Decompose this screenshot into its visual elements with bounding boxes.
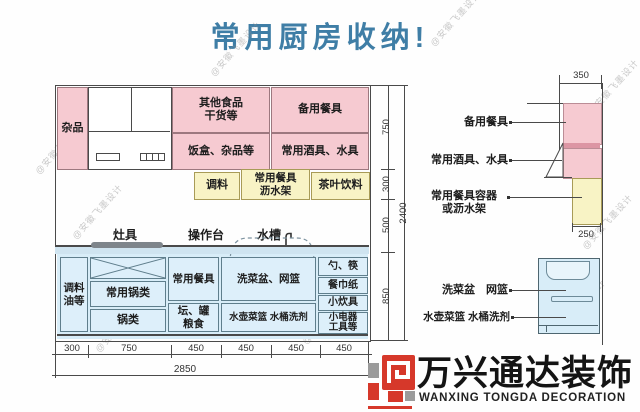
dim-tick bbox=[320, 345, 321, 358]
side-label-container-rack: 常用餐具容器 或沥水架 bbox=[420, 190, 508, 215]
cell-spoons-chopsticks: 勺、筷 bbox=[318, 257, 368, 276]
side-label-basin-basket: 洗菜盆 网篮 bbox=[420, 284, 508, 297]
side-label-wine-water: 常用酒具、水具 bbox=[418, 154, 508, 167]
dim-850: 850 bbox=[382, 281, 394, 311]
hood-top-line bbox=[88, 131, 170, 132]
dim-line-250 bbox=[572, 226, 601, 227]
dim-ext-line bbox=[370, 340, 408, 341]
dim-line-350 bbox=[559, 83, 602, 84]
dim-ext-line bbox=[55, 342, 56, 378]
cell-seasoning: 调料 bbox=[194, 172, 240, 200]
dim-tick bbox=[221, 345, 222, 358]
side-line bbox=[544, 177, 572, 178]
dim-2850: 2850 bbox=[160, 365, 210, 375]
dim-tick bbox=[88, 345, 89, 358]
drawer-x-front bbox=[90, 257, 166, 279]
cell-tea-drinks: 茶叶饮料 bbox=[311, 172, 370, 200]
side-upper-cabinet bbox=[563, 103, 602, 145]
side-label-kettle-bucket: 水壶菜篮 水桶洗剂 bbox=[412, 311, 510, 323]
stove-top bbox=[91, 242, 163, 248]
cell-spare-tableware: 备用餐具 bbox=[271, 87, 369, 133]
x-pattern-icon bbox=[91, 258, 165, 278]
dim-2400: 2400 bbox=[399, 197, 411, 229]
cell-basin-basket: 洗菜盆、网篮 bbox=[221, 257, 316, 301]
side-wall-line bbox=[602, 83, 603, 345]
cell-pots: 锅类 bbox=[90, 309, 166, 332]
cell-jars-grain: 坛、罐 粮食 bbox=[168, 303, 219, 332]
cell-small-cookware: 小炊具 bbox=[318, 295, 368, 311]
leader-line bbox=[510, 197, 582, 198]
kick-plate-line bbox=[57, 334, 368, 336]
kitchen-storage-poster: 常用厨房收纳! @安徽飞墨设计 @安徽飞墨设计 @安徽飞墨设计 @安徽飞墨设计 … bbox=[0, 0, 640, 412]
label-stove: 灶具 bbox=[101, 228, 149, 243]
leader-line bbox=[514, 317, 566, 318]
dim-b-750: 750 bbox=[114, 344, 144, 354]
side-lower-shelf bbox=[563, 148, 602, 179]
cell-lunch-boxes: 饭盒、杂品等 bbox=[172, 133, 270, 170]
dim-b-450a: 450 bbox=[181, 344, 211, 354]
dim-ext-line bbox=[370, 85, 408, 86]
cell-misc: 杂品 bbox=[57, 87, 88, 170]
side-drain-rack bbox=[572, 178, 602, 225]
dim-line-bottom-total bbox=[52, 375, 372, 376]
cell-common-tableware: 常用餐具 bbox=[168, 257, 219, 301]
cell-napkins: 餐巾纸 bbox=[318, 277, 368, 294]
cell-other-food: 其他食品 干货等 bbox=[172, 87, 270, 133]
cell-wine-water: 常用酒具、水具 bbox=[271, 133, 369, 170]
dim-b-450d: 450 bbox=[329, 344, 359, 354]
side-basket-shelf bbox=[551, 296, 593, 302]
dim-tick bbox=[271, 345, 272, 358]
logo-name-en: WANXING TONGDA DECORATION bbox=[419, 392, 640, 404]
side-kick-step bbox=[546, 325, 547, 332]
logo-name-cn: 万兴通达装饰 bbox=[417, 345, 640, 396]
dim-line-bottom bbox=[52, 354, 372, 355]
dim-500: 500 bbox=[382, 210, 394, 240]
dim-300: 300 bbox=[382, 169, 394, 199]
leader-line bbox=[512, 160, 562, 161]
side-kick-line bbox=[538, 325, 598, 326]
cell-drain-rack: 常用餐具 沥水架 bbox=[241, 169, 310, 200]
cell-small-appliances: 小电器 工具等 bbox=[318, 312, 368, 334]
dim-b-450c: 450 bbox=[281, 344, 311, 354]
label-worktop: 操作台 bbox=[180, 228, 232, 243]
cell-common-pots: 常用锅类 bbox=[90, 281, 166, 307]
side-label-spare-tableware: 备用餐具 bbox=[430, 116, 508, 129]
cell-kettle-bucket: 水壶菜篮 水桶洗剂 bbox=[221, 303, 316, 332]
leader-line bbox=[512, 290, 566, 291]
dim-b-300: 300 bbox=[57, 344, 87, 354]
hood-cabinet-divider bbox=[131, 87, 132, 131]
page-title: 常用厨房收纳! bbox=[0, 14, 640, 56]
hood-button bbox=[158, 153, 165, 161]
dim-750: 750 bbox=[382, 112, 394, 142]
dim-350: 350 bbox=[566, 71, 596, 81]
side-sink-basin bbox=[546, 261, 590, 280]
hood-handle bbox=[96, 153, 120, 161]
dim-250: 250 bbox=[571, 230, 601, 240]
dim-b-450b: 450 bbox=[231, 344, 261, 354]
wanxing-logo-icon bbox=[367, 350, 417, 411]
cell-seasoning-oil: 调料 油等 bbox=[60, 257, 88, 332]
dim-tick bbox=[171, 345, 172, 358]
leader-line bbox=[512, 122, 566, 123]
